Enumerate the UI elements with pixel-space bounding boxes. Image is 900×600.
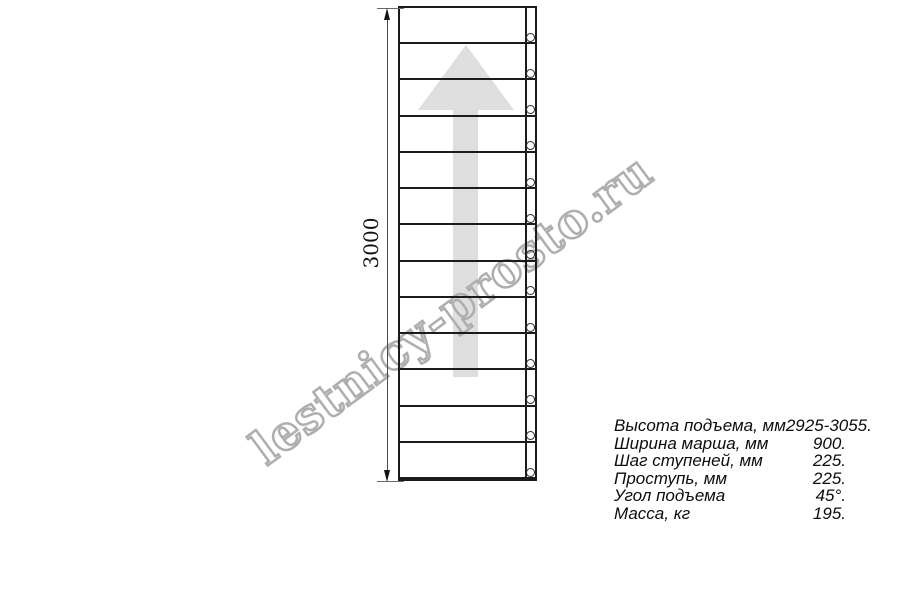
- specs-table: Высота подъема, мм2925-3055.Ширина марша…: [614, 417, 846, 522]
- step-row: [400, 334, 535, 370]
- dimension-line: [387, 12, 388, 470]
- step-row: [400, 117, 535, 153]
- spec-label: Ширина марша, мм: [614, 435, 768, 453]
- bolt-circle-icon: [526, 69, 535, 78]
- step-row: [400, 8, 535, 44]
- spec-row: Угол подъема45°.: [614, 487, 846, 505]
- bolt-circle-icon: [526, 323, 535, 332]
- dimension-label: 3000: [359, 218, 383, 269]
- step-row: [400, 262, 535, 298]
- bolt-circle-icon: [526, 468, 535, 477]
- step-row: [400, 225, 535, 261]
- dimension-arrow-bottom-icon: [384, 470, 390, 482]
- step-row: [400, 44, 535, 80]
- dimension-arrow-top-icon: [384, 8, 390, 20]
- step-row: [400, 189, 535, 225]
- spec-row: Ширина марша, мм900.: [614, 435, 846, 453]
- step-row: [400, 153, 535, 189]
- step-row: [400, 80, 535, 116]
- bolt-circle-icon: [526, 33, 535, 42]
- spec-value: 225.: [813, 470, 846, 488]
- bolt-circle-icon: [526, 395, 535, 404]
- spec-row: Шаг ступеней, мм225.: [614, 452, 846, 470]
- spec-value: 900.: [813, 435, 846, 453]
- spec-label: Угол подъема: [614, 487, 725, 505]
- spec-value: 195.: [813, 505, 846, 523]
- spec-row: Масса, кг195.: [614, 505, 846, 523]
- bolt-circle-icon: [526, 178, 535, 187]
- spec-value: 45°.: [816, 487, 846, 505]
- extension-tick-bottom: [377, 481, 404, 482]
- spec-label: Масса, кг: [614, 505, 690, 523]
- step-row: [400, 407, 535, 443]
- spec-label: Высота подъема, мм: [614, 417, 786, 435]
- staircase-drawing: [398, 6, 537, 481]
- step-row: [400, 370, 535, 406]
- extension-tick-top: [377, 8, 404, 9]
- spec-label: Проступь, мм: [614, 470, 727, 488]
- spec-value: 225.: [813, 452, 846, 470]
- spec-value: 2925-3055.: [786, 417, 872, 435]
- spec-row: Проступь, мм225.: [614, 470, 846, 488]
- spec-label: Шаг ступеней, мм: [614, 452, 763, 470]
- bolt-circle-icon: [526, 359, 535, 368]
- step-row: [400, 298, 535, 334]
- spec-row: Высота подъема, мм2925-3055.: [614, 417, 846, 435]
- bolt-circle-icon: [526, 214, 535, 223]
- stringer-line: [525, 8, 527, 479]
- drawing-canvas: lestnicy-prosto.ru 3000 Высота подъема, …: [0, 0, 900, 600]
- step-row: [400, 443, 535, 479]
